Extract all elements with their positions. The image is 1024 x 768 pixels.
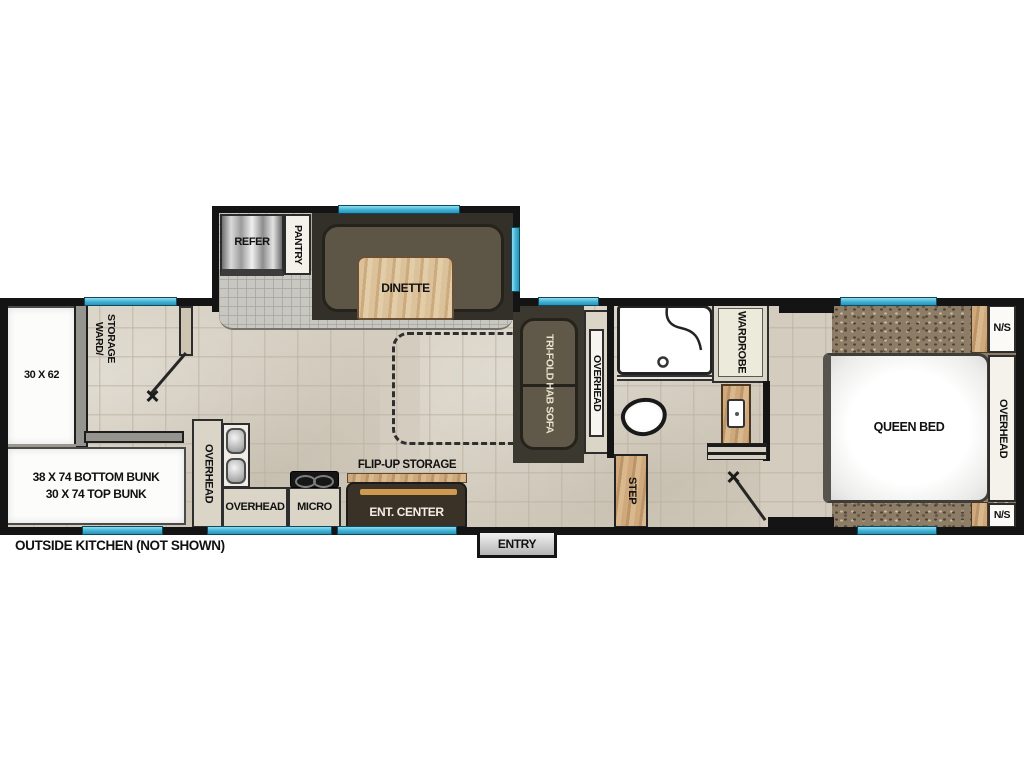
window-living-top <box>538 297 599 306</box>
wardrobe: WARDROBE <box>712 302 769 383</box>
front-bed-30x62: 30 X 62 <box>6 306 77 446</box>
bath-vanity <box>721 384 751 446</box>
floorplan-canvas: REFER PANTRY DINETTE 30 X 62 WARD/ STORA… <box>0 0 1024 768</box>
sofa-label: TRI-FOLD HAB SOFA <box>523 321 575 447</box>
left-wall <box>0 298 8 535</box>
sink-basin-icon <box>226 428 246 454</box>
bedroom-steps-icon <box>707 443 767 460</box>
ns-bottom-label: N/S <box>990 505 1014 526</box>
outside-kitchen-note: OUTSIDE KITCHEN (NOT SHOWN) <box>15 537 235 555</box>
ns-top-label: N/S <box>990 307 1014 351</box>
vanity-sink-icon <box>727 399 745 428</box>
wardrobe-label: WARDROBE <box>719 309 762 376</box>
sofa-overhead-inner: OVERHEAD <box>589 329 604 437</box>
ent-center-accent <box>360 489 457 495</box>
window-front-top <box>84 297 177 306</box>
door-jamb <box>179 306 193 356</box>
flip-up-storage-label: FLIP-UP STORAGE <box>345 458 469 472</box>
wardrobe-inner: WARDROBE <box>718 308 763 377</box>
bedroom-overhead-cabinet: OVERHEAD <box>988 355 1016 502</box>
window-slide-top <box>338 205 460 214</box>
bunk-beds: 38 X 74 BOTTOM BUNK 30 X 74 TOP BUNK <box>6 447 186 525</box>
shower-glass-curve-icon <box>620 308 710 372</box>
window-slide-right <box>511 227 520 292</box>
nightstand-bottom-wood <box>971 502 988 527</box>
window-kitchen-bottom <box>207 526 332 535</box>
nightstand-top: N/S <box>988 305 1016 353</box>
kitchen-overhead-label: OVERHEAD <box>224 489 286 526</box>
window-bunk-bottom <box>82 526 163 535</box>
shower-ledge <box>617 375 713 381</box>
door-handle-icon <box>145 389 159 403</box>
kitchen-counter-vertical: OVERHEAD <box>192 419 223 528</box>
sofa-overhead-label: OVERHEAD <box>591 331 602 435</box>
ent-center-label: ENT. CENTER <box>348 498 465 526</box>
window-bedroom-top <box>840 297 937 306</box>
entry-door: ENTRY <box>477 530 557 558</box>
slide-travel-outline <box>392 332 513 445</box>
cooktop-icon <box>290 471 339 488</box>
bedroom-wall-bottom <box>768 517 834 527</box>
nightstand-top-wood <box>971 305 988 353</box>
window-entcenter-bottom <box>337 526 457 535</box>
sink-counter <box>222 423 250 488</box>
queen-bed-label: QUEEN BED <box>831 356 987 500</box>
nightstand-bottom: N/S <box>988 503 1016 528</box>
kitchen-overhead-cabinet: OVERHEAD <box>222 487 288 528</box>
vanity-faucet-dot <box>735 412 739 416</box>
front-bed-label: 30 X 62 <box>8 308 75 444</box>
slide-out-walls <box>212 206 520 312</box>
shower <box>617 305 713 375</box>
bath-wall-left <box>607 302 614 458</box>
right-wall <box>1016 298 1024 535</box>
window-bedroom-bottom <box>857 526 937 535</box>
kitchen-overhead-vertical-label: OVERHEAD <box>194 421 221 526</box>
sofa-cushions: TRI-FOLD HAB SOFA <box>520 318 578 450</box>
sink-basin-icon <box>226 458 246 484</box>
entry-label: ENTRY <box>480 533 554 555</box>
entry-step-box: STEP <box>614 454 648 528</box>
ward-storage-label: WARD/ STORAGE <box>89 308 121 368</box>
entertainment-center: ENT. CENTER <box>346 482 467 528</box>
bunk-label: 38 X 74 BOTTOM BUNK 30 X 74 TOP BUNK <box>8 449 184 523</box>
queen-bed: QUEEN BED <box>823 353 990 503</box>
sofa-overhead-cabinet: OVERHEAD <box>584 310 609 454</box>
microwave: MICRO <box>288 487 341 528</box>
ward-storage-wall <box>74 302 88 448</box>
bedroom-overhead-label: OVERHEAD <box>990 357 1014 500</box>
micro-label: MICRO <box>290 489 339 526</box>
bedroom-door-handle-icon <box>726 470 740 484</box>
bunk-divider-wall <box>84 431 184 443</box>
step-label: STEP <box>616 456 646 526</box>
